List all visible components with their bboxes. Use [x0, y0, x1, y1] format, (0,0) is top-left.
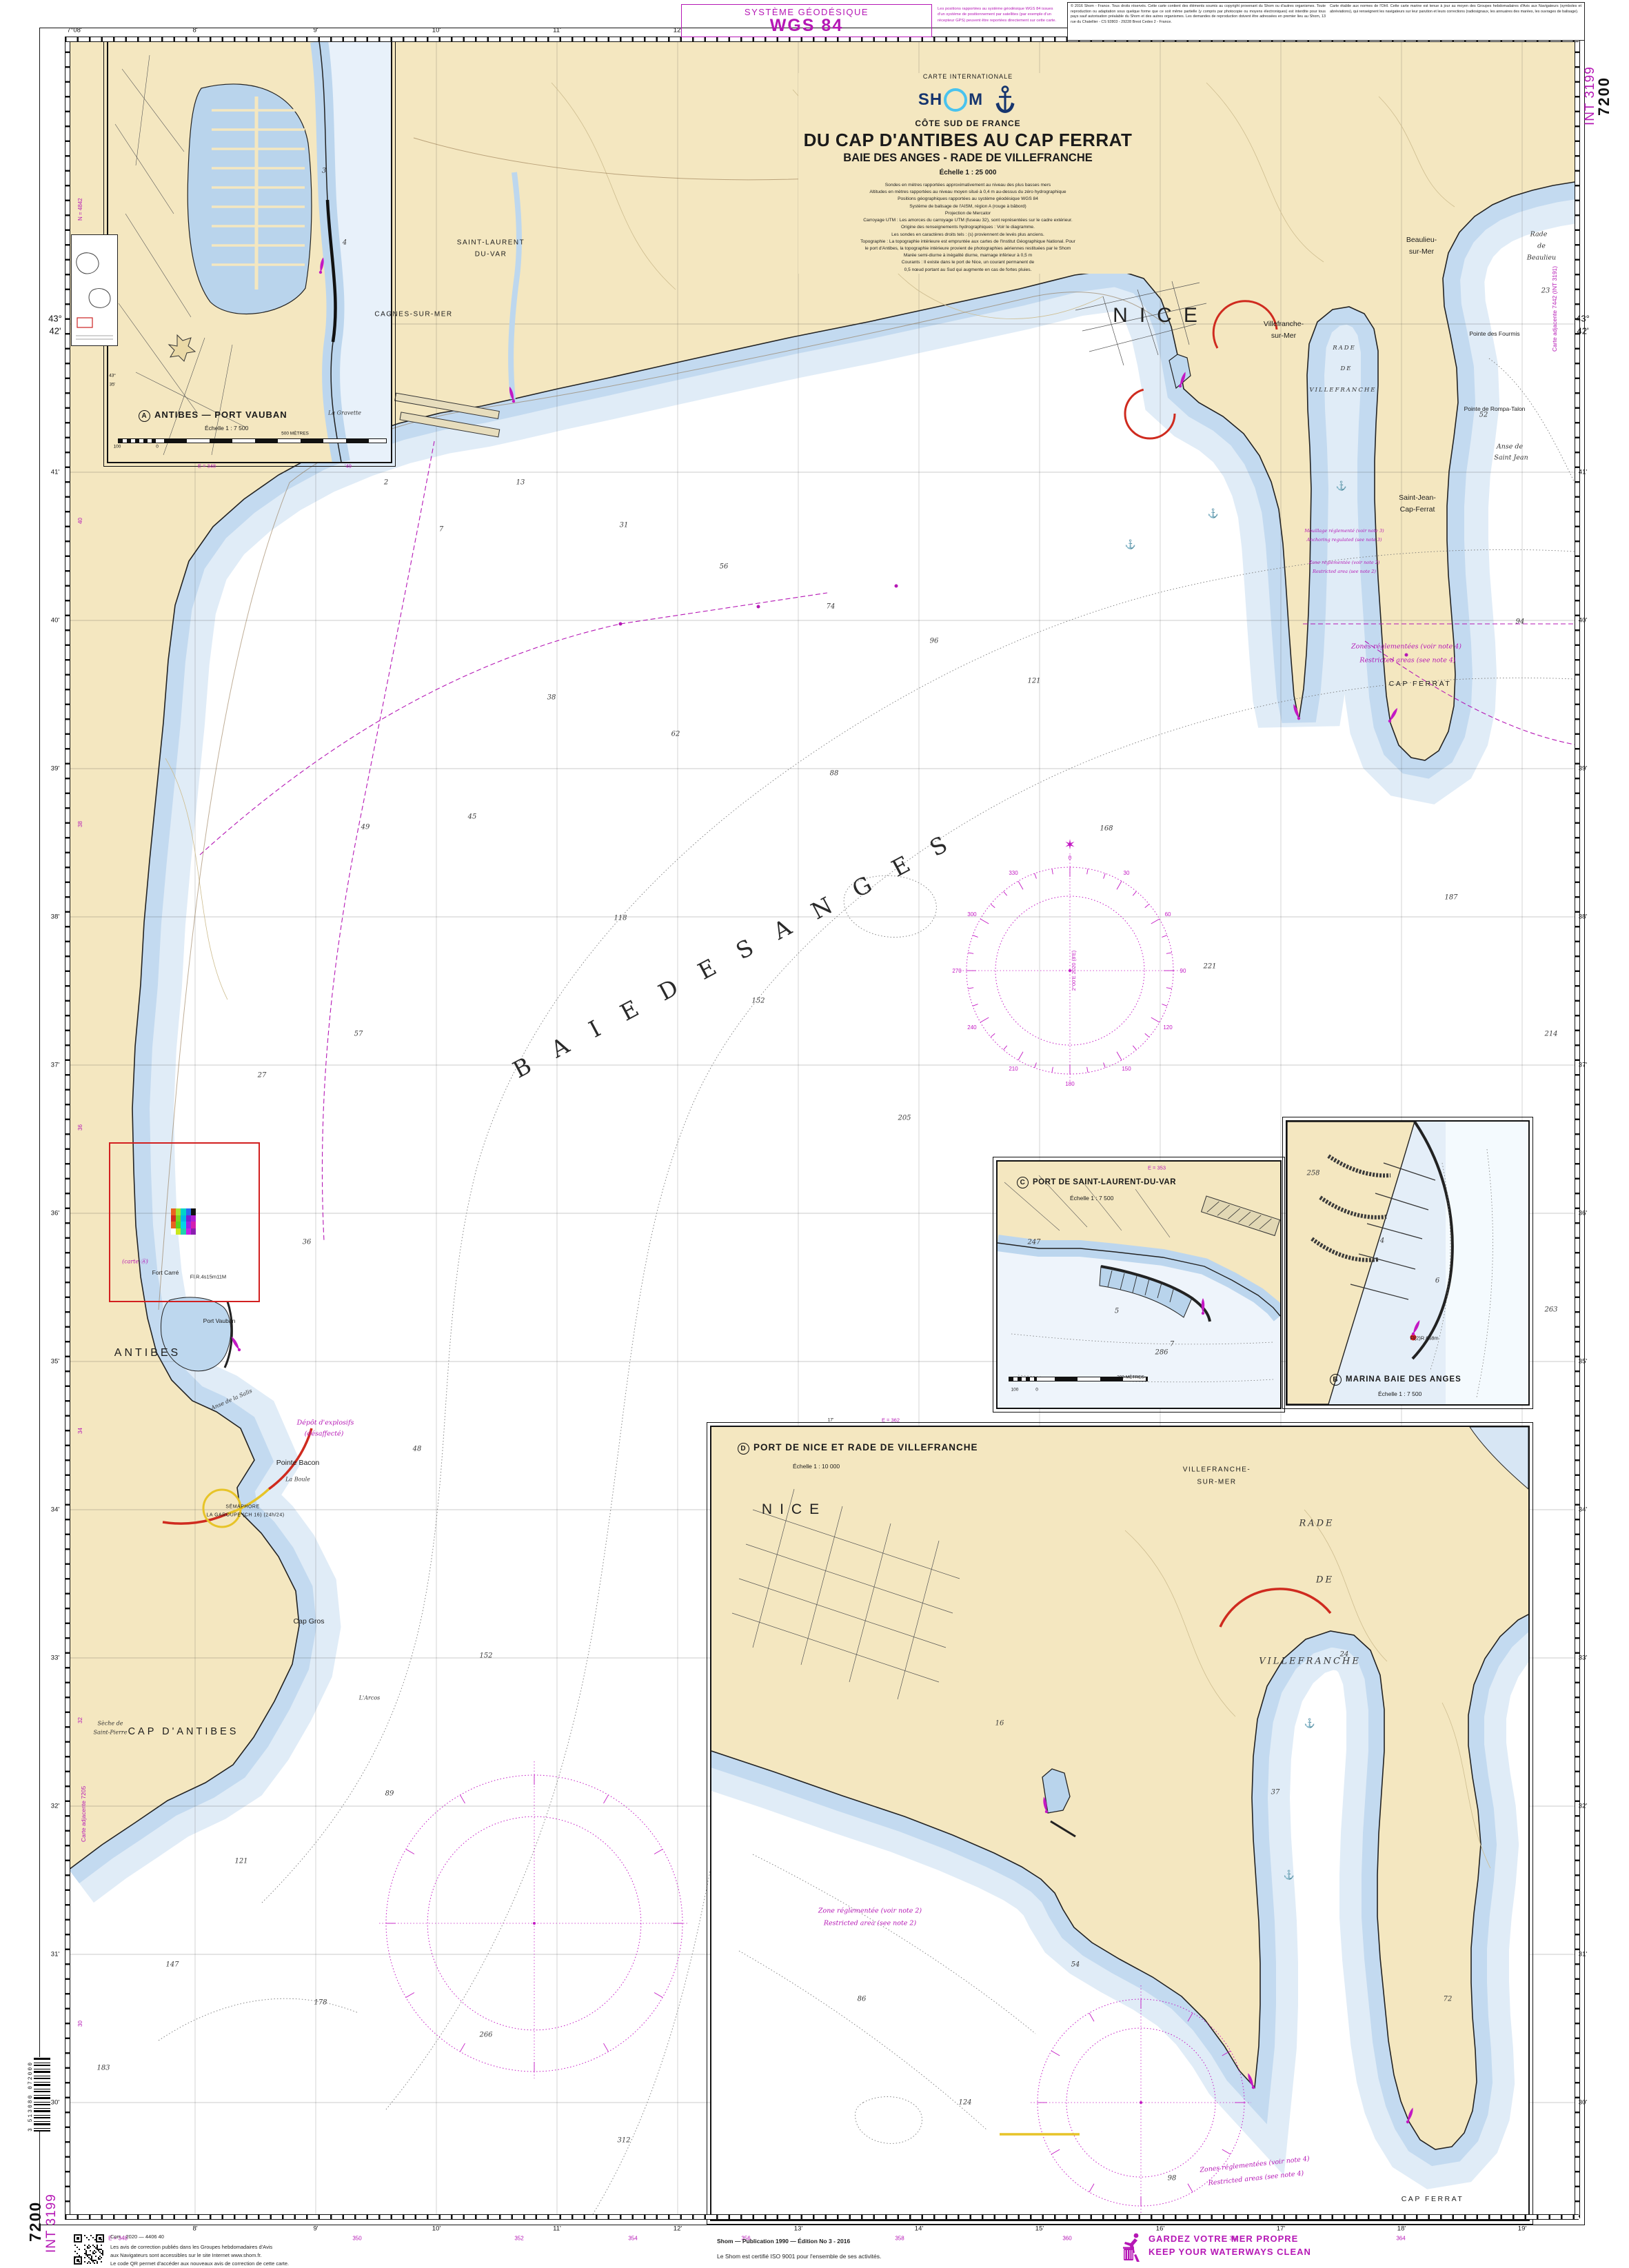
- lon-label-bottom: 14': [915, 2225, 923, 2233]
- lon-label-top: 9': [313, 27, 318, 34]
- lon-label-top: 8': [192, 27, 197, 34]
- lat-label-left: 39': [51, 765, 59, 773]
- lat-label-left: 33': [51, 1654, 59, 1662]
- nautical-chart-page: AANTIBES — PORT VAUBAN Échelle 1 : 7 500: [0, 0, 1629, 2268]
- lat-label-right: 40': [1579, 617, 1587, 625]
- lat-label-right: 32': [1579, 1803, 1587, 1810]
- utm-label-left: 34: [77, 1428, 83, 1434]
- lon-label-bottom: 12': [674, 2225, 682, 2233]
- chart-info-note-box: Carte établie aux normes de l'OHI. Cette…: [1327, 2, 1585, 41]
- lat-label-right: 42': [1577, 326, 1589, 336]
- lat-label-right: 33': [1579, 1654, 1587, 1662]
- utm-label-left: N = 4842: [77, 198, 83, 221]
- lon-label-bottom: 16': [1156, 2225, 1164, 2233]
- keep-clean-fr: GARDEZ VOTRE MER PROPRE: [1149, 2234, 1298, 2244]
- lat-label-left: 30': [51, 2099, 59, 2107]
- geodetic-note: Les positions rapportées au système géod…: [938, 6, 1060, 37]
- barcode: 3 513080 072000: [28, 2057, 50, 2132]
- geodetic-system-box: SYSTÈME GÉODÉSIQUE WGS 84: [681, 4, 932, 37]
- lat-label-left: 40': [51, 617, 59, 625]
- lat-label-right: 31': [1579, 1951, 1587, 1958]
- margin-labels-layer: 43°42'41'40'39'38'37'36'35'34'33'32'31'3…: [0, 0, 1629, 2268]
- lon-label-bottom: 8': [192, 2225, 197, 2233]
- inset-margin-label: 17': [828, 1418, 833, 1423]
- lat-label-right: 36': [1579, 1210, 1587, 1217]
- inset-margin-label: E = 353: [1148, 1165, 1166, 1171]
- utm-label-left: 38: [77, 821, 83, 827]
- qr-code: [73, 2234, 105, 2265]
- inset-margin-label: 500 MÈTRES: [281, 432, 309, 436]
- inset-margin-label: E = 348: [198, 463, 216, 469]
- qr-note-line1: Les avis de correction publiés dans les …: [110, 2244, 272, 2250]
- inset-margin-label: E = 362: [882, 1417, 900, 1424]
- inset-margin-label: 43°: [109, 374, 116, 378]
- inset-margin-label: 200 MÈTRES: [1117, 1375, 1144, 1380]
- utm-label-left: 32: [77, 1717, 83, 1723]
- lon-label-bottom: 9': [313, 2225, 318, 2233]
- lon-label-top: 7°08': [67, 27, 81, 34]
- adjacent-chart-right: Carte adjacente 7442 (INT 3191): [1551, 266, 1558, 352]
- lon-label-top: 11': [553, 27, 561, 34]
- lat-label-left: 41': [51, 469, 59, 476]
- lat-label-left: 38': [51, 913, 59, 921]
- lat-label-left: 31': [51, 1951, 59, 1958]
- lat-label-left: 37': [51, 1062, 59, 1069]
- lat-label-right: 38': [1579, 913, 1587, 921]
- lon-label-bottom: 18': [1397, 2225, 1406, 2233]
- qr-note-line2: aux Navigateurs sont accessibles sur le …: [110, 2252, 262, 2258]
- int-number-bottom-left: INT 3199: [44, 2194, 59, 2253]
- lon-label-bottom: 19': [1518, 2225, 1526, 2233]
- inset-margin-label: 35': [110, 383, 115, 387]
- inset-margin-label: 0: [156, 445, 159, 449]
- lat-label-right: 37': [1579, 1062, 1587, 1069]
- utm-label-left: 30: [77, 2021, 83, 2027]
- lat-label-left: 43°: [48, 314, 62, 324]
- utm-label-bottom: 350: [352, 2236, 361, 2242]
- lat-label-left: 32': [51, 1803, 59, 1810]
- lat-label-left: 34': [51, 1506, 59, 1514]
- utm-label-bottom: 354: [628, 2236, 637, 2242]
- inset-margin-label: 0: [1035, 1388, 1038, 1393]
- lon-label-bottom: 13': [794, 2225, 802, 2233]
- lon-label-bottom: 15': [1035, 2225, 1044, 2233]
- lat-label-left: 42': [50, 326, 61, 336]
- lat-label-right: 43°: [1576, 314, 1590, 324]
- lat-label-right: 30': [1579, 2099, 1587, 2107]
- qr-note-line3: Le code QR permet d'accéder aux nouveaux…: [110, 2260, 289, 2267]
- utm-label-left: 40: [77, 518, 83, 524]
- lon-label-bottom: 11': [553, 2225, 561, 2233]
- utm-label-bottom: 364: [1396, 2236, 1405, 2242]
- lon-label-top: 10': [432, 27, 441, 34]
- inset-margin-label: 100: [1011, 1388, 1019, 1393]
- lat-label-right: 39': [1579, 765, 1587, 773]
- keep-clean-en: KEEP YOUR WATERWAYS CLEAN: [1149, 2247, 1311, 2257]
- lon-label-bottom: 10': [432, 2225, 441, 2233]
- utm-label-bottom: 352: [514, 2236, 523, 2242]
- keep-clean-icon: [1121, 2232, 1143, 2262]
- lat-label-right: 34': [1579, 1506, 1587, 1514]
- lon-label-bottom: 17': [1277, 2225, 1285, 2233]
- source-diagram-box: [71, 234, 118, 346]
- iso-note: Le Shom est certifié ISO 9001 pour l'ens…: [717, 2253, 881, 2260]
- chart-number-top-right: 7200: [1595, 77, 1613, 116]
- inset-margin-label: 100: [114, 445, 121, 449]
- adjacent-chart-left: Carte adjacente 7205: [80, 1786, 87, 1842]
- copyright-note-box: © 2016 Shom - France. Tous droits réserv…: [1067, 2, 1329, 41]
- lat-label-left: 35': [51, 1358, 59, 1366]
- geodetic-system-value: WGS 84: [682, 17, 931, 34]
- utm-label-bottom: 360: [1062, 2236, 1071, 2242]
- lat-label-right: 41': [1579, 469, 1587, 476]
- lat-label-right: 35': [1579, 1358, 1587, 1366]
- utm-label-bottom: 358: [895, 2236, 904, 2242]
- publication-note: Shom — Publication 1990 — Édition No 3 -…: [717, 2238, 850, 2245]
- chart-number-bottom-left: 7200: [26, 2201, 45, 2242]
- inset-margin-label: '49: [345, 463, 352, 469]
- correction-number: Corr. : 2020 — 4406 40: [110, 2234, 164, 2240]
- lat-label-left: 36': [51, 1210, 59, 1217]
- utm-label-left: 36: [77, 1124, 83, 1131]
